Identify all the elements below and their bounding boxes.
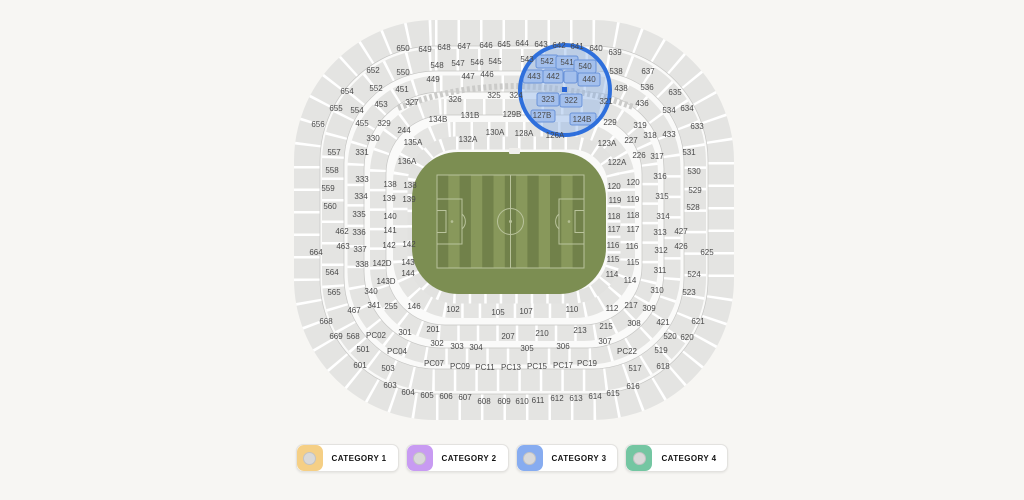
- section-label-334[interactable]: 334: [354, 193, 367, 201]
- section-label-447[interactable]: 447: [461, 73, 474, 81]
- section-label-315[interactable]: 315: [655, 193, 668, 201]
- section-label-633[interactable]: 633: [690, 123, 703, 131]
- section-label-640[interactable]: 640: [589, 45, 602, 53]
- section-label-140[interactable]: 140: [383, 213, 396, 221]
- section-label-542[interactable]: 542: [540, 58, 553, 66]
- section-label-545[interactable]: 545: [488, 58, 501, 66]
- section-label-PC17[interactable]: PC17: [553, 362, 573, 370]
- section-label-130A[interactable]: 130A: [486, 129, 505, 137]
- category-4-label: CATEGORY 4: [652, 454, 727, 463]
- category-1-dot-icon: [303, 452, 316, 465]
- category-3-dot-icon: [523, 452, 536, 465]
- section-label-324[interactable]: 324: [509, 92, 522, 100]
- field: [412, 148, 606, 294]
- section-label-615[interactable]: 615: [606, 390, 619, 398]
- section-label-115[interactable]: 115: [607, 256, 620, 264]
- section-label-308[interactable]: 308: [627, 320, 640, 328]
- section-label-462[interactable]: 462: [335, 228, 348, 236]
- section-label-117[interactable]: 117: [627, 226, 640, 234]
- section-label-664[interactable]: 664: [309, 249, 322, 257]
- section-label-305[interactable]: 305: [520, 345, 533, 353]
- section-label-558[interactable]: 558: [325, 167, 338, 175]
- section-label-301[interactable]: 301: [398, 329, 411, 337]
- category-4-swatch: [626, 445, 652, 471]
- section-label-616[interactable]: 616: [626, 383, 639, 391]
- section-label-120[interactable]: 120: [626, 179, 639, 187]
- section-label-421[interactable]: 421: [656, 319, 669, 327]
- section-label-313[interactable]: 313: [653, 229, 666, 237]
- section-label-302[interactable]: 302: [430, 340, 443, 348]
- section-label-213[interactable]: 213: [573, 327, 586, 335]
- section-label-136A[interactable]: 136A: [398, 158, 417, 166]
- section-label-645[interactable]: 645: [497, 41, 510, 49]
- section-label-540[interactable]: 540: [578, 63, 591, 71]
- section-label-319[interactable]: 319: [633, 122, 646, 130]
- section-label-618[interactable]: 618: [656, 363, 669, 371]
- category-2-label: CATEGORY 2: [433, 454, 508, 463]
- section-label-641[interactable]: 641: [570, 43, 583, 51]
- section-label-634[interactable]: 634: [680, 105, 693, 113]
- section-label-122A[interactable]: 122A: [608, 159, 627, 167]
- section-label-337[interactable]: 337: [353, 246, 366, 254]
- section-label-648[interactable]: 648: [437, 44, 450, 52]
- section-label-643[interactable]: 643: [534, 41, 547, 49]
- section-label-463[interactable]: 463: [336, 243, 349, 251]
- section-label-142D[interactable]: 142D: [372, 260, 391, 268]
- section-label-255[interactable]: 255: [384, 303, 397, 311]
- section-label-201[interactable]: 201: [426, 326, 439, 334]
- legend-category-4[interactable]: CATEGORY 4: [625, 444, 728, 472]
- section-label-127B[interactable]: 127B: [533, 112, 552, 120]
- section-label-426[interactable]: 426: [674, 243, 687, 251]
- section-label-143D[interactable]: 143D: [376, 278, 395, 286]
- section-label-PC04[interactable]: PC04: [387, 348, 407, 356]
- category-legend: CATEGORY 1 CATEGORY 2 CATEGORY 3 CATEGOR…: [0, 444, 1024, 472]
- section-label-613[interactable]: 613: [569, 395, 582, 403]
- section-label-650[interactable]: 650: [396, 45, 409, 53]
- section-label-519[interactable]: 519: [654, 347, 667, 355]
- section-label-557[interactable]: 557: [327, 149, 340, 157]
- section-label-330[interactable]: 330: [366, 135, 379, 143]
- section-label-436[interactable]: 436: [635, 100, 648, 108]
- section-label-119[interactable]: 119: [627, 196, 640, 204]
- section-label-438[interactable]: 438: [614, 85, 627, 93]
- section-label-123A[interactable]: 123A: [598, 140, 617, 148]
- section-label-143[interactable]: 143: [401, 259, 414, 267]
- section-label-552[interactable]: 552: [369, 85, 382, 93]
- section-label-520[interactable]: 520: [663, 333, 676, 341]
- section-label-433[interactable]: 433: [662, 131, 675, 139]
- section-label-142[interactable]: 142: [402, 241, 415, 249]
- section-label-207[interactable]: 207: [501, 333, 514, 341]
- section-label-323[interactable]: 323: [541, 96, 554, 104]
- section-label-605[interactable]: 605: [420, 392, 433, 400]
- section-label-536[interactable]: 536: [640, 84, 653, 92]
- section-label-550[interactable]: 550: [396, 69, 409, 77]
- section-label-110[interactable]: 110: [566, 306, 579, 314]
- section-label-PC11[interactable]: PC11: [475, 364, 494, 372]
- category-1-label: CATEGORY 1: [323, 454, 398, 463]
- section-label-327[interactable]: 327: [405, 99, 418, 107]
- section-label-654[interactable]: 654: [340, 88, 353, 96]
- section-label-501[interactable]: 501: [356, 346, 369, 354]
- section-label-427[interactable]: 427: [674, 228, 687, 236]
- section-label-PC15[interactable]: PC15: [527, 363, 547, 371]
- section-label-560[interactable]: 560: [323, 203, 336, 211]
- category-4-dot-icon: [633, 452, 646, 465]
- stadium-map[interactable]: [0, 0, 1024, 500]
- legend-category-3[interactable]: CATEGORY 3: [516, 444, 619, 472]
- section-label-135A[interactable]: 135A: [404, 139, 423, 147]
- section-label-331[interactable]: 331: [355, 149, 368, 157]
- section-label-107[interactable]: 107: [519, 308, 532, 316]
- section-label-321[interactable]: 321: [599, 98, 612, 106]
- section-label-118[interactable]: 118: [608, 213, 621, 221]
- section-label-217[interactable]: 217: [624, 302, 637, 310]
- section-label-105[interactable]: 105: [491, 309, 504, 317]
- section-label-625[interactable]: 625: [700, 249, 713, 257]
- section-label-530[interactable]: 530: [687, 168, 700, 176]
- section-label-229[interactable]: 229: [603, 119, 616, 127]
- section-label-646[interactable]: 646: [479, 42, 492, 50]
- section-label-655[interactable]: 655: [329, 105, 342, 113]
- section-label-564[interactable]: 564: [325, 269, 338, 277]
- section-label-134B[interactable]: 134B: [429, 116, 448, 124]
- section-label-335[interactable]: 335: [352, 211, 365, 219]
- section-label-604[interactable]: 604: [401, 389, 414, 397]
- section-label-543[interactable]: 543: [520, 56, 533, 64]
- section-label-446[interactable]: 446: [480, 71, 493, 79]
- section-label-606[interactable]: 606: [439, 393, 452, 401]
- section-label-139[interactable]: 139: [402, 196, 415, 204]
- section-label-607[interactable]: 607: [458, 394, 471, 402]
- section-label-215[interactable]: 215: [599, 323, 612, 331]
- section-label-443[interactable]: 443: [527, 73, 540, 81]
- section-label-142[interactable]: 142: [382, 242, 395, 250]
- section-label-524[interactable]: 524: [687, 271, 700, 279]
- category-3-swatch: [517, 445, 543, 471]
- section-label-548[interactable]: 548: [430, 62, 443, 70]
- section-label-129B[interactable]: 129B: [503, 111, 522, 119]
- section-label-329[interactable]: 329: [377, 120, 390, 128]
- section-label-546[interactable]: 546: [470, 59, 483, 67]
- section-label-139[interactable]: 139: [382, 195, 395, 203]
- section-label-554[interactable]: 554: [350, 107, 363, 115]
- section-label-322[interactable]: 322: [564, 97, 577, 105]
- section-label-120[interactable]: 120: [607, 183, 620, 191]
- section-label-620[interactable]: 620: [680, 334, 693, 342]
- section-label-119[interactable]: 119: [609, 197, 622, 205]
- section-label-116[interactable]: 116: [607, 242, 620, 250]
- legend-category-2[interactable]: CATEGORY 2: [406, 444, 509, 472]
- section-label-318[interactable]: 318: [643, 132, 656, 140]
- section-label-326[interactable]: 326: [448, 96, 461, 104]
- section-label-538[interactable]: 538: [609, 68, 622, 76]
- section-label-116[interactable]: 116: [626, 243, 639, 251]
- section-label-PC07[interactable]: PC07: [424, 360, 444, 368]
- section-label-559[interactable]: 559: [321, 185, 334, 193]
- section-label-309[interactable]: 309: [642, 305, 655, 313]
- section-label-317[interactable]: 317: [650, 153, 663, 161]
- section-label-547[interactable]: 547: [451, 60, 464, 68]
- section-label-303[interactable]: 303: [450, 343, 463, 351]
- selected-seat-marker[interactable]: [562, 87, 567, 92]
- section-label-112[interactable]: 112: [606, 305, 619, 313]
- section-label-138[interactable]: 138: [403, 182, 416, 190]
- section-label-341[interactable]: 341: [367, 302, 380, 310]
- section-label-325[interactable]: 325: [487, 92, 500, 100]
- tunnel-marker: [509, 148, 520, 154]
- section-label-649[interactable]: 649: [418, 46, 431, 54]
- section-label-609[interactable]: 609: [497, 398, 510, 406]
- section-label-126A[interactable]: 126A: [546, 132, 565, 140]
- section-label-603[interactable]: 603: [383, 382, 396, 390]
- section-label-531[interactable]: 531: [682, 149, 695, 157]
- section-label-451[interactable]: 451: [395, 86, 408, 94]
- section-label-144[interactable]: 144: [401, 270, 414, 278]
- section-label-621[interactable]: 621: [691, 318, 704, 326]
- legend-category-1[interactable]: CATEGORY 1: [296, 444, 399, 472]
- section-label-PC22[interactable]: PC22: [617, 348, 637, 356]
- category-2-dot-icon: [413, 452, 426, 465]
- section-label-311[interactable]: 311: [654, 267, 667, 275]
- section-label-608[interactable]: 608: [477, 398, 490, 406]
- section-label-565[interactable]: 565: [327, 289, 340, 297]
- section-label-449[interactable]: 449: [426, 76, 439, 84]
- section-label-644[interactable]: 644: [515, 40, 528, 48]
- section-label-639[interactable]: 639: [608, 49, 621, 57]
- section-label-128A[interactable]: 128A: [515, 130, 534, 138]
- section-label-314[interactable]: 314: [656, 213, 669, 221]
- section-label-114[interactable]: 114: [624, 277, 637, 285]
- section-label-453[interactable]: 453: [374, 101, 387, 109]
- section-label-529[interactable]: 529: [688, 187, 701, 195]
- section-label-316[interactable]: 316: [653, 173, 666, 181]
- section-label-131B[interactable]: 131B: [461, 112, 480, 120]
- highlighted-block-440[interactable]: [564, 71, 577, 83]
- section-label-568[interactable]: 568: [346, 333, 359, 341]
- section-label-668[interactable]: 668: [319, 318, 332, 326]
- section-label-637[interactable]: 637: [641, 68, 654, 76]
- section-label-124B[interactable]: 124B: [573, 116, 592, 124]
- category-1-swatch: [297, 445, 323, 471]
- section-label-146[interactable]: 146: [407, 303, 420, 311]
- category-2-swatch: [407, 445, 433, 471]
- section-label-336[interactable]: 336: [352, 229, 365, 237]
- section-label-114[interactable]: 114: [606, 271, 619, 279]
- section-label-PC13[interactable]: PC13: [501, 364, 521, 372]
- seatmap-page: 6506496486476466456446436426416406396526…: [0, 0, 1024, 500]
- section-label-141[interactable]: 141: [383, 227, 396, 235]
- section-label-610[interactable]: 610: [515, 398, 528, 406]
- section-label-642[interactable]: 642: [552, 42, 565, 50]
- section-label-656[interactable]: 656: [311, 121, 324, 129]
- section-label-517[interactable]: 517: [628, 365, 641, 373]
- section-label-338[interactable]: 338: [355, 261, 368, 269]
- section-label-132A[interactable]: 132A: [459, 136, 478, 144]
- section-label-138[interactable]: 138: [383, 181, 396, 189]
- section-label-442[interactable]: 442: [546, 73, 559, 81]
- section-label-310[interactable]: 310: [650, 287, 663, 295]
- section-label-614[interactable]: 614: [588, 393, 601, 401]
- section-label-669[interactable]: 669: [329, 333, 342, 341]
- section-label-440[interactable]: 440: [582, 76, 595, 84]
- section-label-503[interactable]: 503: [381, 365, 394, 373]
- section-label-304[interactable]: 304: [469, 344, 482, 352]
- section-label-PC02[interactable]: PC02: [366, 332, 386, 340]
- section-label-455[interactable]: 455: [355, 120, 368, 128]
- section-label-306[interactable]: 306: [556, 343, 569, 351]
- section-label-467[interactable]: 467: [347, 307, 360, 315]
- section-label-635[interactable]: 635: [668, 89, 681, 97]
- section-label-534[interactable]: 534: [662, 107, 675, 115]
- section-label-102[interactable]: 102: [446, 306, 459, 314]
- section-label-227[interactable]: 227: [624, 137, 637, 145]
- section-label-601[interactable]: 601: [353, 362, 366, 370]
- section-label-PC09[interactable]: PC09: [450, 363, 470, 371]
- section-label-115[interactable]: 115: [627, 259, 640, 267]
- section-label-312[interactable]: 312: [654, 247, 667, 255]
- section-label-340[interactable]: 340: [364, 288, 377, 296]
- section-label-333[interactable]: 333: [355, 176, 368, 184]
- section-label-652[interactable]: 652: [366, 67, 379, 75]
- section-label-307[interactable]: 307: [598, 338, 611, 346]
- section-label-117[interactable]: 117: [608, 226, 621, 234]
- section-label-611[interactable]: 611: [532, 397, 545, 405]
- section-label-226[interactable]: 226: [632, 152, 645, 160]
- section-label-528[interactable]: 528: [686, 204, 699, 212]
- section-label-523[interactable]: 523: [682, 289, 695, 297]
- section-label-541[interactable]: 541: [560, 59, 573, 67]
- category-3-label: CATEGORY 3: [543, 454, 618, 463]
- section-label-PC19[interactable]: PC19: [577, 360, 597, 368]
- section-label-244[interactable]: 244: [397, 127, 410, 135]
- section-label-118[interactable]: 118: [627, 212, 640, 220]
- section-label-647[interactable]: 647: [457, 43, 470, 51]
- section-label-612[interactable]: 612: [550, 395, 563, 403]
- section-label-210[interactable]: 210: [535, 330, 548, 338]
